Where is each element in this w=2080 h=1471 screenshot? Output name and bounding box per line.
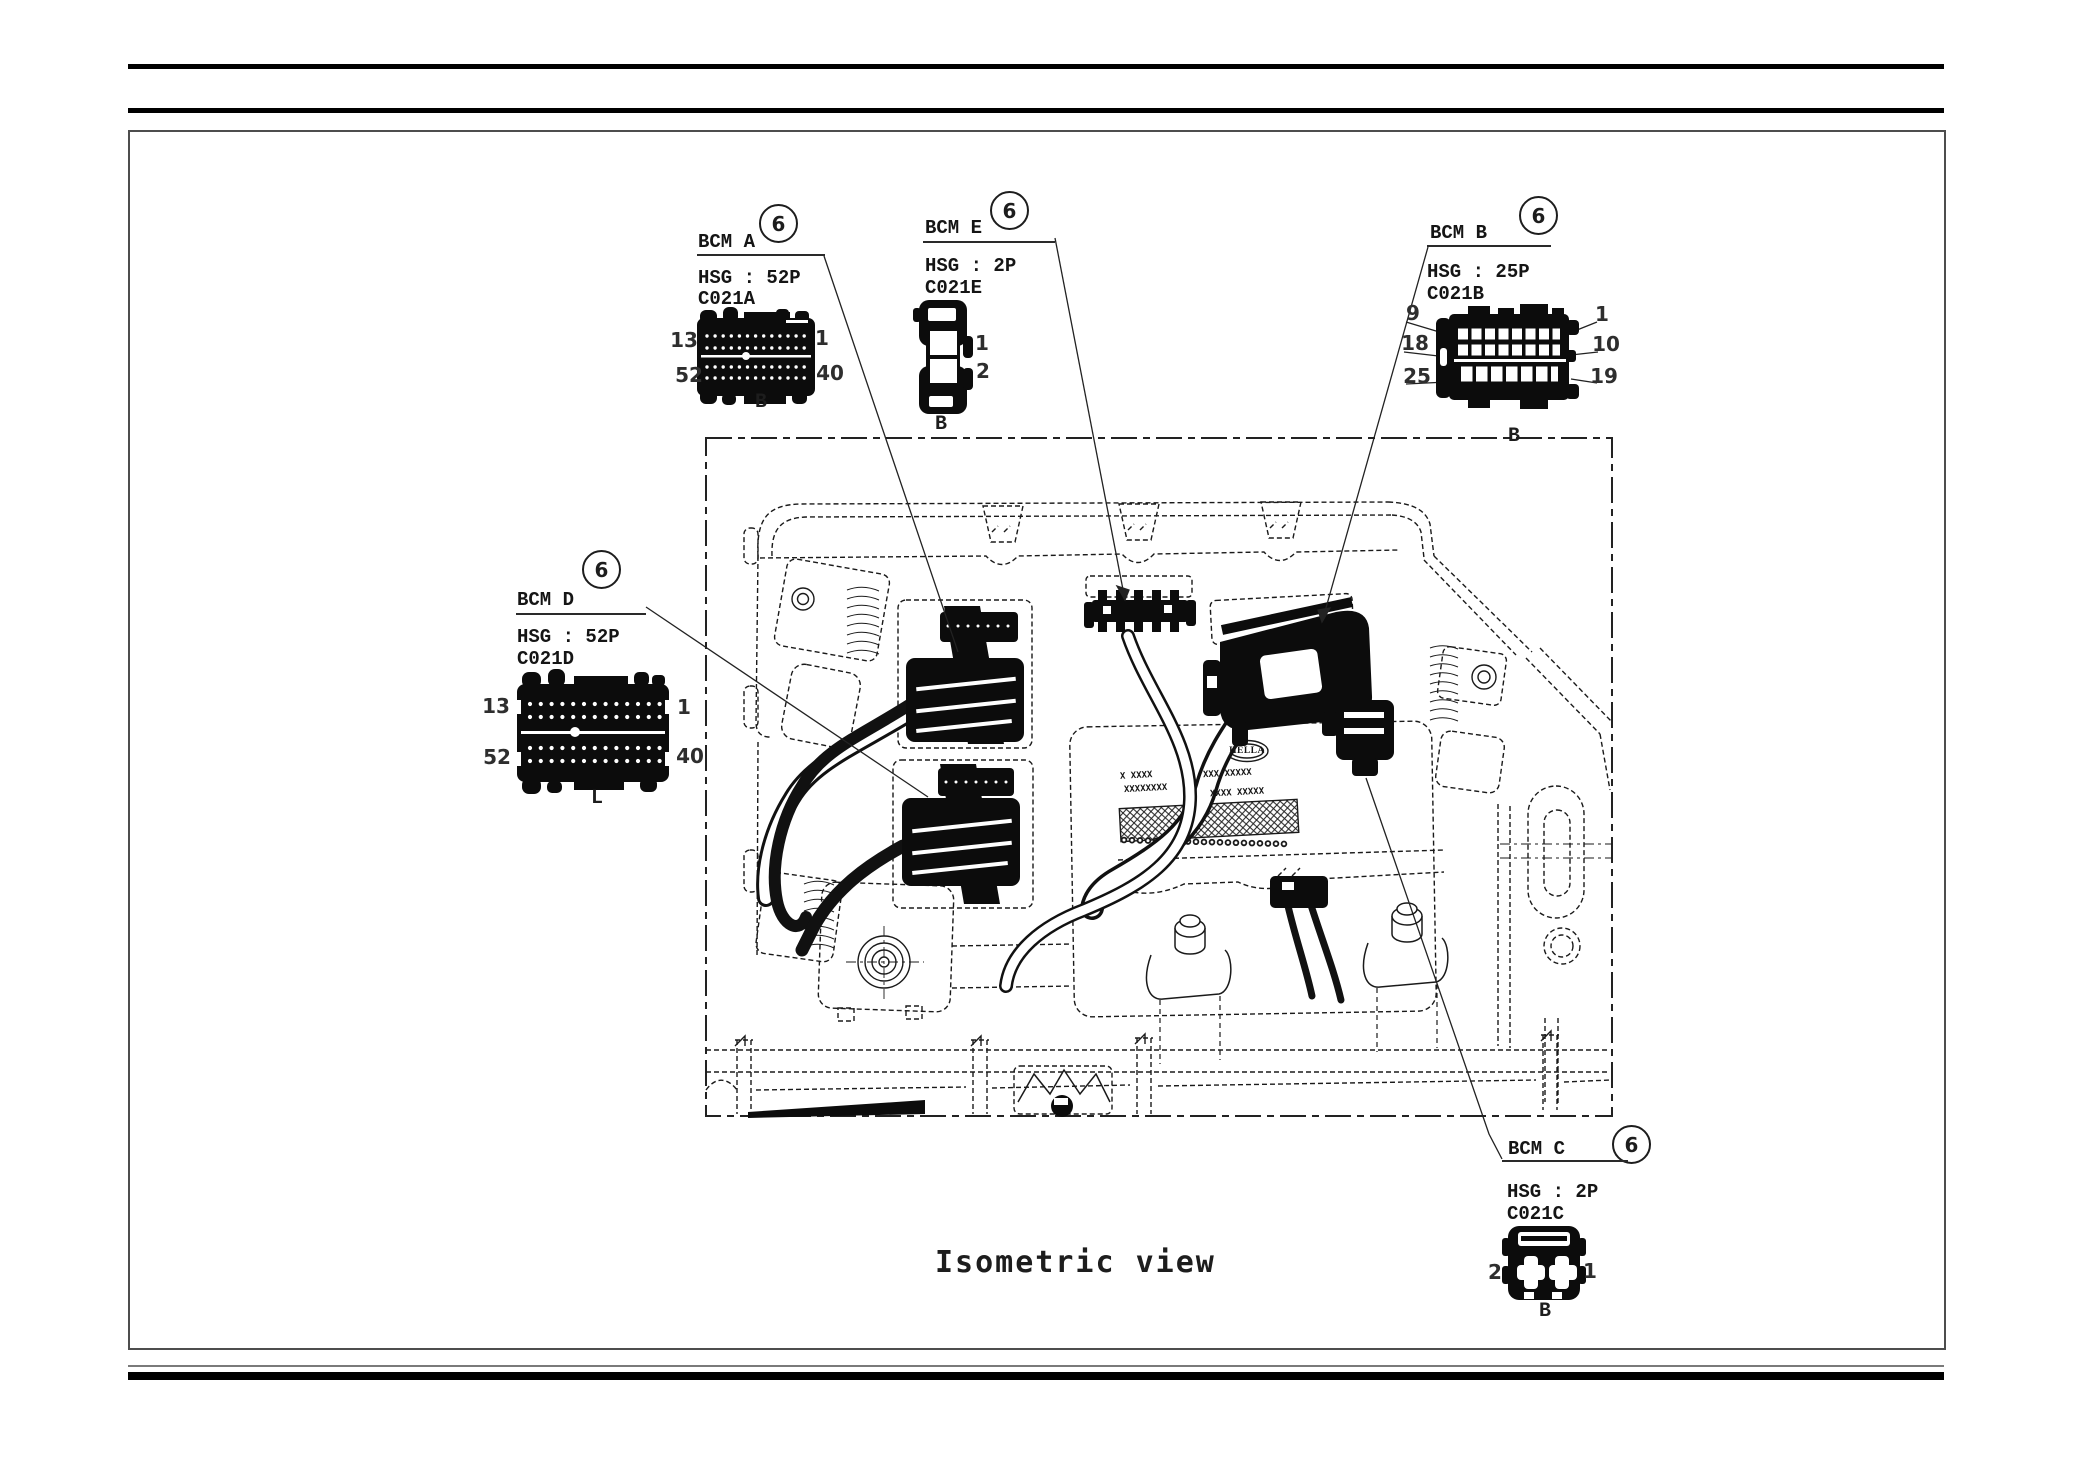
connector-e-pinout — [913, 300, 973, 414]
callout-e-row-letter: B — [935, 415, 947, 435]
callout-e-pin-2: 2 — [976, 361, 990, 381]
callout-b-index-badge: 6 — [1519, 196, 1558, 235]
connector-a-mated — [906, 606, 1024, 744]
rivet-chain — [1124, 840, 1288, 844]
callout-d-pin-52: 52 — [483, 747, 511, 767]
callout-a-index-badge: 6 — [759, 204, 798, 243]
callout-d-index-badge: 6 — [582, 550, 621, 589]
callout-c-pin-1: 1 — [1583, 1261, 1597, 1281]
callout-b-pin-10: 10 — [1592, 334, 1620, 354]
callout-c-row-letter: B — [1539, 1302, 1551, 1322]
callout-e-code: C021E — [925, 279, 982, 298]
callout-c-hsg: HSG : 2P — [1507, 1183, 1598, 1202]
hella-logo-text: HELLA — [1229, 746, 1265, 756]
callout-d-pin-13: 13 — [482, 696, 510, 716]
callout-c-underline — [1502, 1160, 1628, 1162]
callout-b-underline — [1427, 245, 1551, 247]
connector-b-pinout — [1436, 304, 1579, 409]
callout-d-hsg: HSG : 52P — [517, 628, 620, 647]
callout-b-index: 6 — [1532, 204, 1546, 228]
connector-c-pinout — [1502, 1226, 1586, 1300]
callout-e-index: 6 — [1003, 199, 1017, 223]
callout-c-index-badge: 6 — [1612, 1125, 1651, 1164]
callout-b-pin-25: 25 — [1403, 366, 1431, 386]
callout-d-code: C021D — [517, 650, 574, 669]
callout-e-index-badge: 6 — [990, 191, 1029, 230]
callout-b-code: C021B — [1427, 285, 1484, 304]
callout-a-pin-52: 52 — [675, 365, 703, 385]
callout-a-pin-40: 40 — [816, 363, 844, 383]
callout-a-label: BCM A — [698, 233, 755, 252]
callout-d-label: BCM D — [517, 591, 574, 610]
callout-d-row-letter: L — [591, 789, 603, 809]
plate-line-1: X XXXX — [1120, 771, 1153, 782]
callout-c-index: 6 — [1625, 1133, 1639, 1157]
callout-d-pin-1: 1 — [677, 697, 691, 717]
callout-b-pin-1: 1 — [1595, 304, 1609, 324]
callout-d-pin-40: 40 — [676, 746, 704, 766]
callout-b-pin-18: 18 — [1401, 333, 1429, 353]
callout-e-underline — [923, 241, 1055, 243]
manual-page: 6 BCM A HSG : 52P C021A 13 1 52 40 B 6 B… — [0, 0, 2080, 1471]
callout-a-underline — [697, 254, 825, 256]
connector-d-pinout — [517, 669, 669, 794]
callout-a-code: C021A — [698, 290, 755, 309]
cable-d — [802, 846, 903, 950]
callout-e-label: BCM E — [925, 219, 982, 238]
callout-a-pin-13: 13 — [670, 330, 698, 350]
callout-e-pin-1: 1 — [975, 333, 989, 353]
callout-b-pin-9: 9 — [1406, 303, 1420, 323]
callout-a-row-letter: B — [755, 393, 767, 413]
callout-c-pin-2: 2 — [1488, 1262, 1502, 1282]
callout-a-index: 6 — [772, 212, 786, 236]
callout-a-hsg: HSG : 52P — [698, 269, 801, 288]
callout-b-hsg: HSG : 25P — [1427, 263, 1530, 282]
cable-c-pigtails — [1288, 902, 1341, 1000]
callout-e-hsg: HSG : 2P — [925, 257, 1016, 276]
callout-c-label: BCM C — [1508, 1140, 1565, 1159]
callout-a-pin-1: 1 — [815, 328, 829, 348]
phantom-border — [706, 438, 1612, 1116]
callout-c-code: C021C — [1507, 1205, 1564, 1224]
callout-b-pin-19: 19 — [1590, 366, 1618, 386]
connector-d-mated — [902, 764, 1020, 904]
callout-d-index: 6 — [595, 558, 609, 582]
callout-d-underline — [516, 613, 646, 615]
callout-b-row-letter: B — [1508, 427, 1520, 447]
callout-b-label: BCM B — [1430, 224, 1487, 243]
figure-caption: Isometric view — [935, 1245, 1216, 1280]
